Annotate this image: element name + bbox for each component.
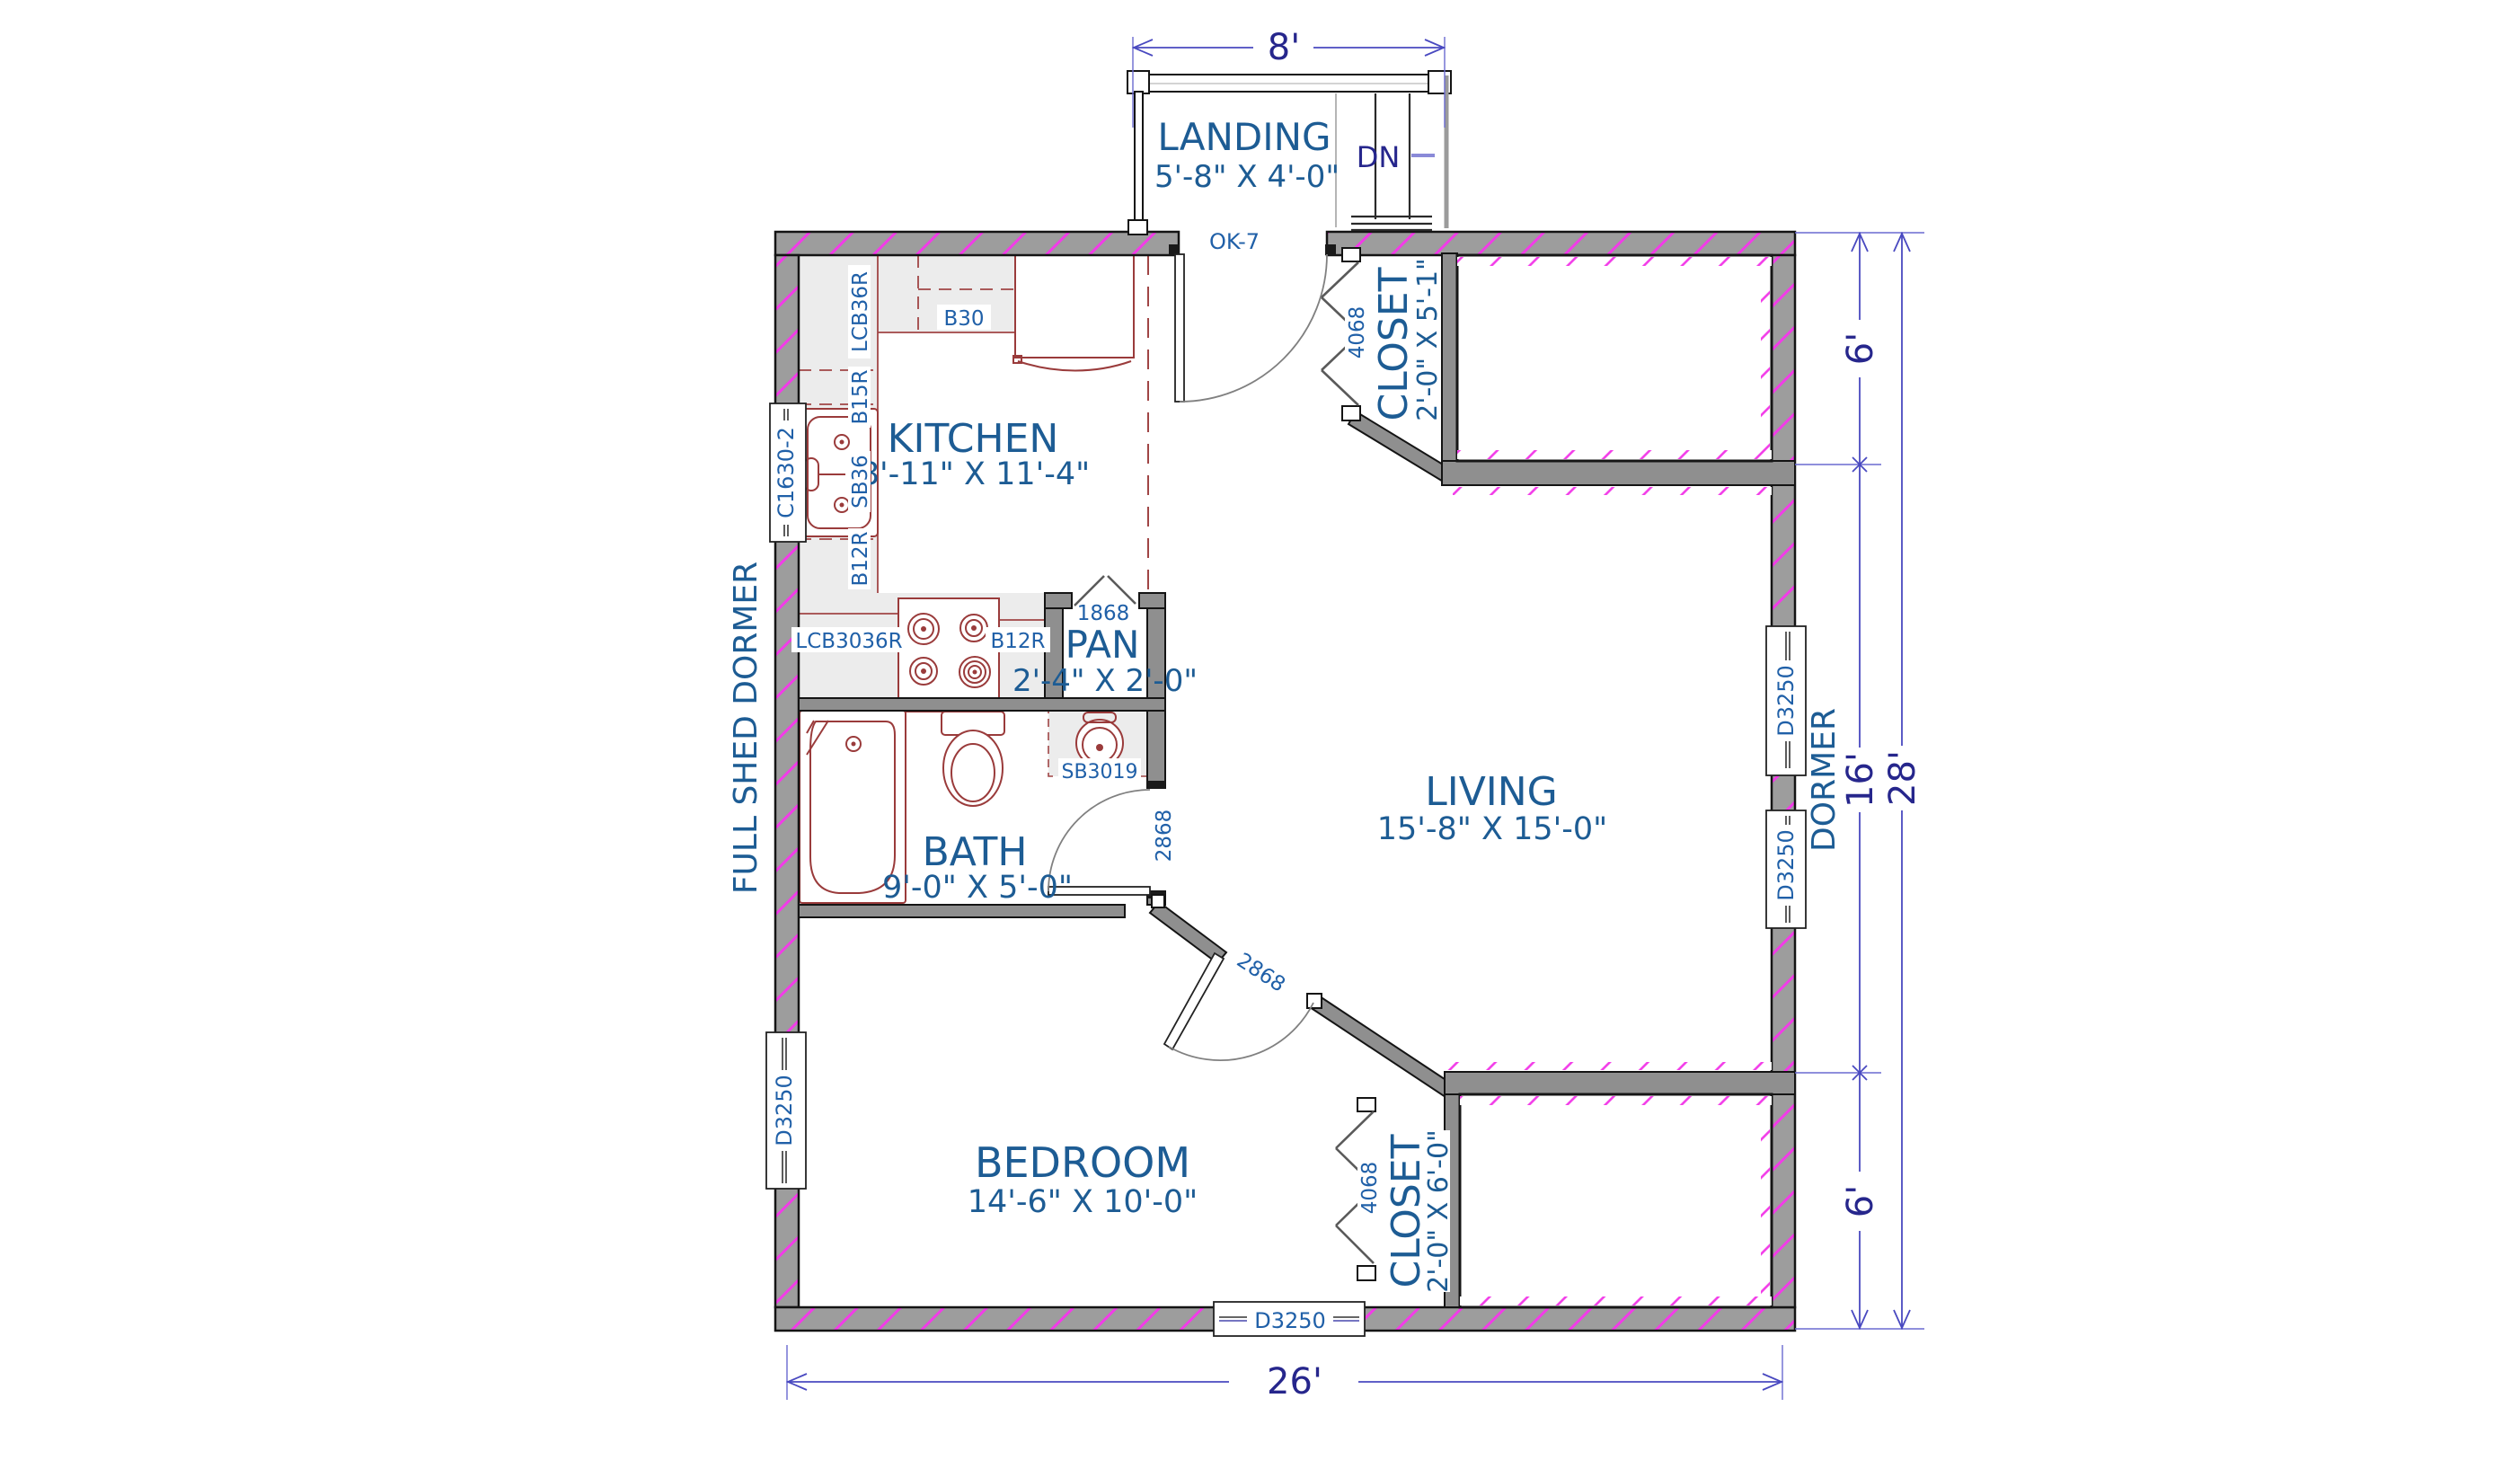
dim-right-middle: 16' (1840, 752, 1881, 808)
landing-rail-left (1135, 92, 1143, 220)
door-label-pantry: 1868 (1077, 602, 1130, 625)
refrigerator (1013, 255, 1134, 371)
closet-upper-dims: 2'-0" X 5'-1" (1412, 258, 1444, 421)
cabinet-label-base-12-upper: B12R (849, 531, 872, 586)
dim-overall-depth: 28' (1882, 750, 1923, 806)
cabinet-label-wall-corner: LCB36R (849, 271, 872, 352)
entry-door-label: OK-7 (1209, 229, 1260, 254)
floor-plan-drawing: LANDING 5'-8" X 4'-0" KITCHEN 8'-11" X 1… (0, 0, 2520, 1469)
left-dormer-label: FULL SHED DORMER (728, 562, 765, 894)
kitchen-name: KITCHEN (888, 416, 1059, 462)
cabinet-label-bath-vanity: SB3019 (1061, 761, 1137, 783)
landing-name: LANDING (1157, 115, 1331, 159)
living-dims: 15'-8" X 15'-0" (1377, 811, 1608, 847)
cabinet-label-base-15: B15R (849, 369, 872, 424)
door-label-closet-upper: 4068 (1346, 306, 1369, 359)
window-label-living-right-lower: D3250 (1773, 829, 1799, 901)
pantry-dims: 2'-4" X 2'-0" (1012, 663, 1198, 699)
bedroom-name: BEDROOM (975, 1138, 1190, 1187)
pantry-name: PAN (1065, 623, 1140, 667)
dim-right-lower: 6' (1840, 1185, 1881, 1217)
door-label-bath: 2868 (1153, 810, 1176, 863)
kitchen-dims: 8'-11" X 11'-4" (860, 456, 1091, 492)
entry-door (1169, 244, 1336, 402)
cabinet-label-wall-30: B30 (943, 307, 984, 331)
bedroom-dims: 14'-6" X 10'-0" (968, 1184, 1198, 1220)
door-label-bedroom: 2868 (1233, 949, 1289, 997)
stove (898, 598, 999, 712)
cabinet-label-sink-base: SB36 (849, 455, 872, 509)
dim-right-upper: 6' (1840, 332, 1881, 365)
window-label-living-right-upper: D3250 (1773, 665, 1799, 737)
window-label-kitchen-left: C1630-2 (774, 427, 799, 518)
closet-upper-name: CLOSET (1371, 267, 1417, 420)
door-label-closet-lower: 4068 (1358, 1162, 1382, 1215)
living-name: LIVING (1425, 769, 1558, 815)
window-label-bedroom-bottom: D3250 (1254, 1308, 1326, 1333)
toilet (942, 712, 1004, 806)
floor-plan-page: LANDING 5'-8" X 4'-0" KITCHEN 8'-11" X 1… (0, 0, 2520, 1469)
dim-landing-width: 8' (1268, 27, 1300, 68)
window-label-bedroom-left: D3250 (772, 1075, 797, 1146)
closet-lower-dims: 2'-0" X 6'-0" (1423, 1129, 1455, 1293)
right-dormer-label: DORMER (1806, 708, 1843, 852)
cabinet-label-base-12-lower: B12R (990, 630, 1045, 653)
dim-overall-width: 26' (1267, 1361, 1322, 1403)
landing-dims: 5'-8" X 4'-0" (1154, 159, 1340, 195)
cabinet-label-base-corner: LCB3036R (795, 630, 902, 653)
bath-dims: 9'-0" X 5'-0" (882, 870, 1073, 906)
bath-name: BATH (923, 829, 1028, 875)
stair-dn-label: DN (1357, 140, 1401, 174)
